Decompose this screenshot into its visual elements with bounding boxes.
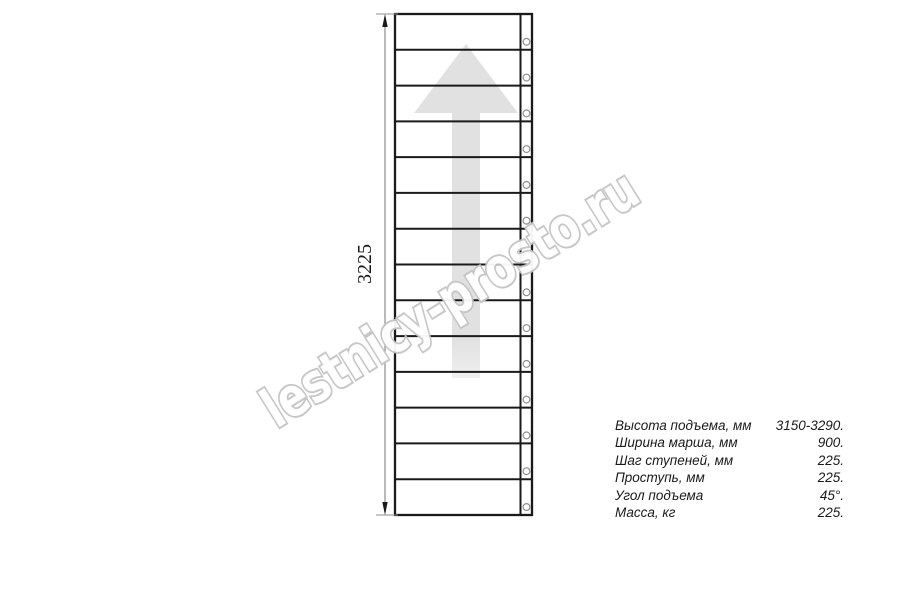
mount-hole-icon	[523, 38, 530, 45]
spec-row-angle: Угол подъема 45°.	[615, 487, 844, 504]
mount-hole-icon	[523, 468, 530, 475]
spec-value: 900.	[818, 434, 844, 451]
spec-label: Ширина марша, мм	[615, 434, 738, 451]
mount-hole-icon	[523, 361, 530, 368]
stair-drawing-page: 3225 lestnicy-prosto.ru Высота подъема, …	[0, 0, 900, 600]
spec-value: 225.	[818, 504, 844, 521]
dimension-line-group: 3225	[354, 14, 398, 515]
spec-label: Высота подъема, мм	[615, 417, 751, 434]
spec-value: 225.	[818, 452, 844, 469]
spec-row-tread: Проступь, мм 225.	[615, 469, 844, 486]
spec-table: Высота подъема, мм 3150-3290. Ширина мар…	[615, 417, 844, 521]
dimension-arrow-down-icon	[382, 502, 387, 515]
mount-hole-icon	[523, 396, 530, 403]
spec-label: Угол подъема	[615, 487, 703, 504]
mount-hole-icon	[523, 289, 530, 296]
spec-row-mass: Масса, кг 225.	[615, 504, 844, 521]
mount-hole-icon	[523, 432, 530, 439]
mount-hole-icon	[523, 182, 530, 189]
mount-hole-icon	[523, 110, 530, 117]
mount-hole-icon	[523, 146, 530, 153]
spec-label: Проступь, мм	[615, 469, 705, 486]
mount-hole-icon	[523, 74, 530, 81]
mount-hole-icon	[523, 504, 530, 511]
spec-value: 3150-3290.	[776, 417, 844, 434]
dimension-arrow-up-icon	[382, 14, 387, 27]
spec-row-step: Шаг ступеней, мм 225.	[615, 452, 844, 469]
spec-value: 45°.	[820, 487, 844, 504]
dimension-label: 3225	[354, 244, 376, 284]
spec-row-width: Ширина марша, мм 900.	[615, 434, 844, 451]
watermark: lestnicy-prosto.ru	[250, 158, 650, 440]
mount-hole-icon	[523, 325, 530, 332]
spec-row-height: Высота подъема, мм 3150-3290.	[615, 417, 844, 434]
spec-label: Шаг ступеней, мм	[615, 452, 733, 469]
spec-value: 225.	[818, 469, 844, 486]
spec-label: Масса, кг	[615, 504, 675, 521]
